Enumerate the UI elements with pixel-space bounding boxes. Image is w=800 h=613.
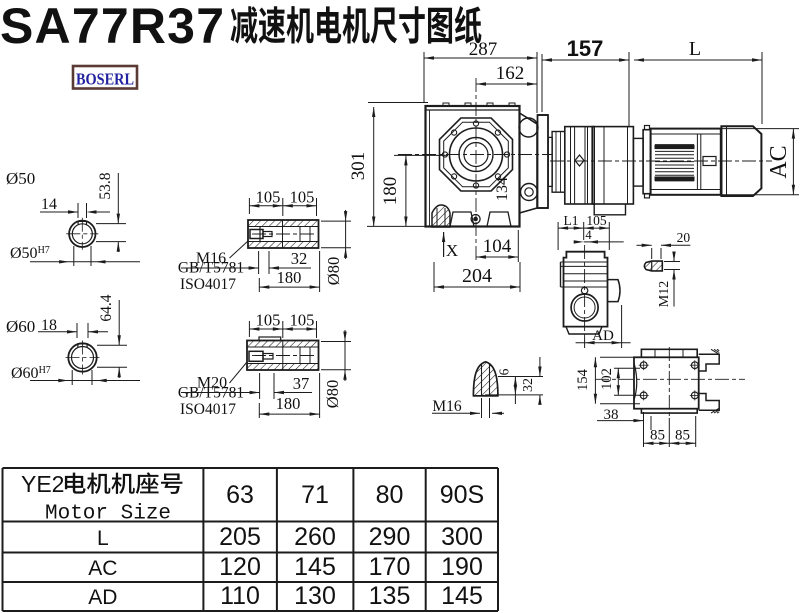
svg-text:6: 6 bbox=[497, 368, 512, 375]
svg-text:105: 105 bbox=[256, 188, 281, 207]
svg-text:104: 104 bbox=[483, 236, 512, 257]
svg-text:180: 180 bbox=[277, 268, 302, 287]
svg-text:301: 301 bbox=[348, 152, 369, 181]
svg-text:53.8: 53.8 bbox=[97, 172, 114, 199]
svg-text:134: 134 bbox=[494, 177, 511, 201]
svg-text:190: 190 bbox=[441, 553, 483, 581]
svg-text:105: 105 bbox=[586, 213, 607, 228]
svg-text:290: 290 bbox=[369, 523, 411, 551]
svg-text:90S: 90S bbox=[440, 481, 484, 509]
svg-text:120: 120 bbox=[219, 553, 261, 581]
svg-text:105: 105 bbox=[256, 311, 281, 330]
svg-text:110: 110 bbox=[220, 582, 260, 610]
svg-text:AC: AC bbox=[766, 145, 792, 178]
svg-text:L1: L1 bbox=[564, 213, 579, 228]
svg-text:M12: M12 bbox=[657, 281, 672, 307]
svg-text:Ø80: Ø80 bbox=[323, 380, 342, 408]
svg-text:ISO4017: ISO4017 bbox=[180, 401, 236, 418]
svg-text:AC: AC bbox=[88, 557, 117, 580]
svg-text:20: 20 bbox=[677, 230, 691, 245]
svg-text:L: L bbox=[689, 38, 701, 60]
svg-text:162: 162 bbox=[496, 63, 525, 84]
svg-text:M16: M16 bbox=[432, 398, 462, 415]
svg-text:130: 130 bbox=[294, 582, 336, 610]
svg-text:L: L bbox=[97, 527, 109, 550]
svg-text:AD: AD bbox=[592, 328, 614, 344]
svg-text:180: 180 bbox=[276, 394, 301, 413]
svg-text:Motor Size: Motor Size bbox=[45, 503, 171, 526]
svg-text:102: 102 bbox=[599, 368, 615, 390]
svg-text:287: 287 bbox=[469, 39, 498, 60]
svg-text:154: 154 bbox=[575, 368, 591, 391]
svg-text:300: 300 bbox=[441, 523, 483, 551]
svg-text:4: 4 bbox=[585, 228, 592, 242]
svg-text:X: X bbox=[446, 241, 458, 260]
svg-text:37: 37 bbox=[293, 374, 310, 393]
svg-text:145: 145 bbox=[441, 582, 483, 610]
svg-text:Ø60: Ø60 bbox=[6, 317, 35, 336]
svg-text:80: 80 bbox=[376, 481, 404, 509]
svg-text:170: 170 bbox=[369, 553, 411, 581]
svg-text:32: 32 bbox=[291, 249, 308, 268]
svg-text:SA77R37: SA77R37 bbox=[0, 0, 225, 54]
svg-text:105: 105 bbox=[290, 311, 315, 330]
svg-text:ISO4017: ISO4017 bbox=[180, 276, 236, 293]
svg-text:AD: AD bbox=[88, 586, 117, 609]
svg-text:85: 85 bbox=[650, 428, 665, 444]
svg-text:105: 105 bbox=[290, 188, 315, 207]
svg-text:157: 157 bbox=[567, 36, 604, 61]
svg-text:Ø80: Ø80 bbox=[324, 257, 343, 285]
svg-text:63: 63 bbox=[226, 481, 254, 509]
svg-text:32: 32 bbox=[521, 378, 536, 392]
svg-text:YE2: YE2 bbox=[21, 471, 64, 497]
svg-text:180: 180 bbox=[380, 177, 401, 206]
svg-text:135: 135 bbox=[369, 582, 411, 610]
svg-text:260: 260 bbox=[294, 523, 336, 551]
svg-text:Ø50: Ø50 bbox=[6, 169, 35, 188]
svg-text:204: 204 bbox=[462, 265, 492, 287]
svg-text:145: 145 bbox=[294, 553, 336, 581]
svg-text:71: 71 bbox=[301, 481, 329, 509]
svg-text:64.4: 64.4 bbox=[98, 294, 115, 321]
svg-text:14: 14 bbox=[41, 196, 57, 213]
svg-text:85: 85 bbox=[675, 428, 690, 444]
svg-text:205: 205 bbox=[219, 523, 261, 551]
svg-text:BOSERL: BOSERL bbox=[76, 70, 134, 89]
